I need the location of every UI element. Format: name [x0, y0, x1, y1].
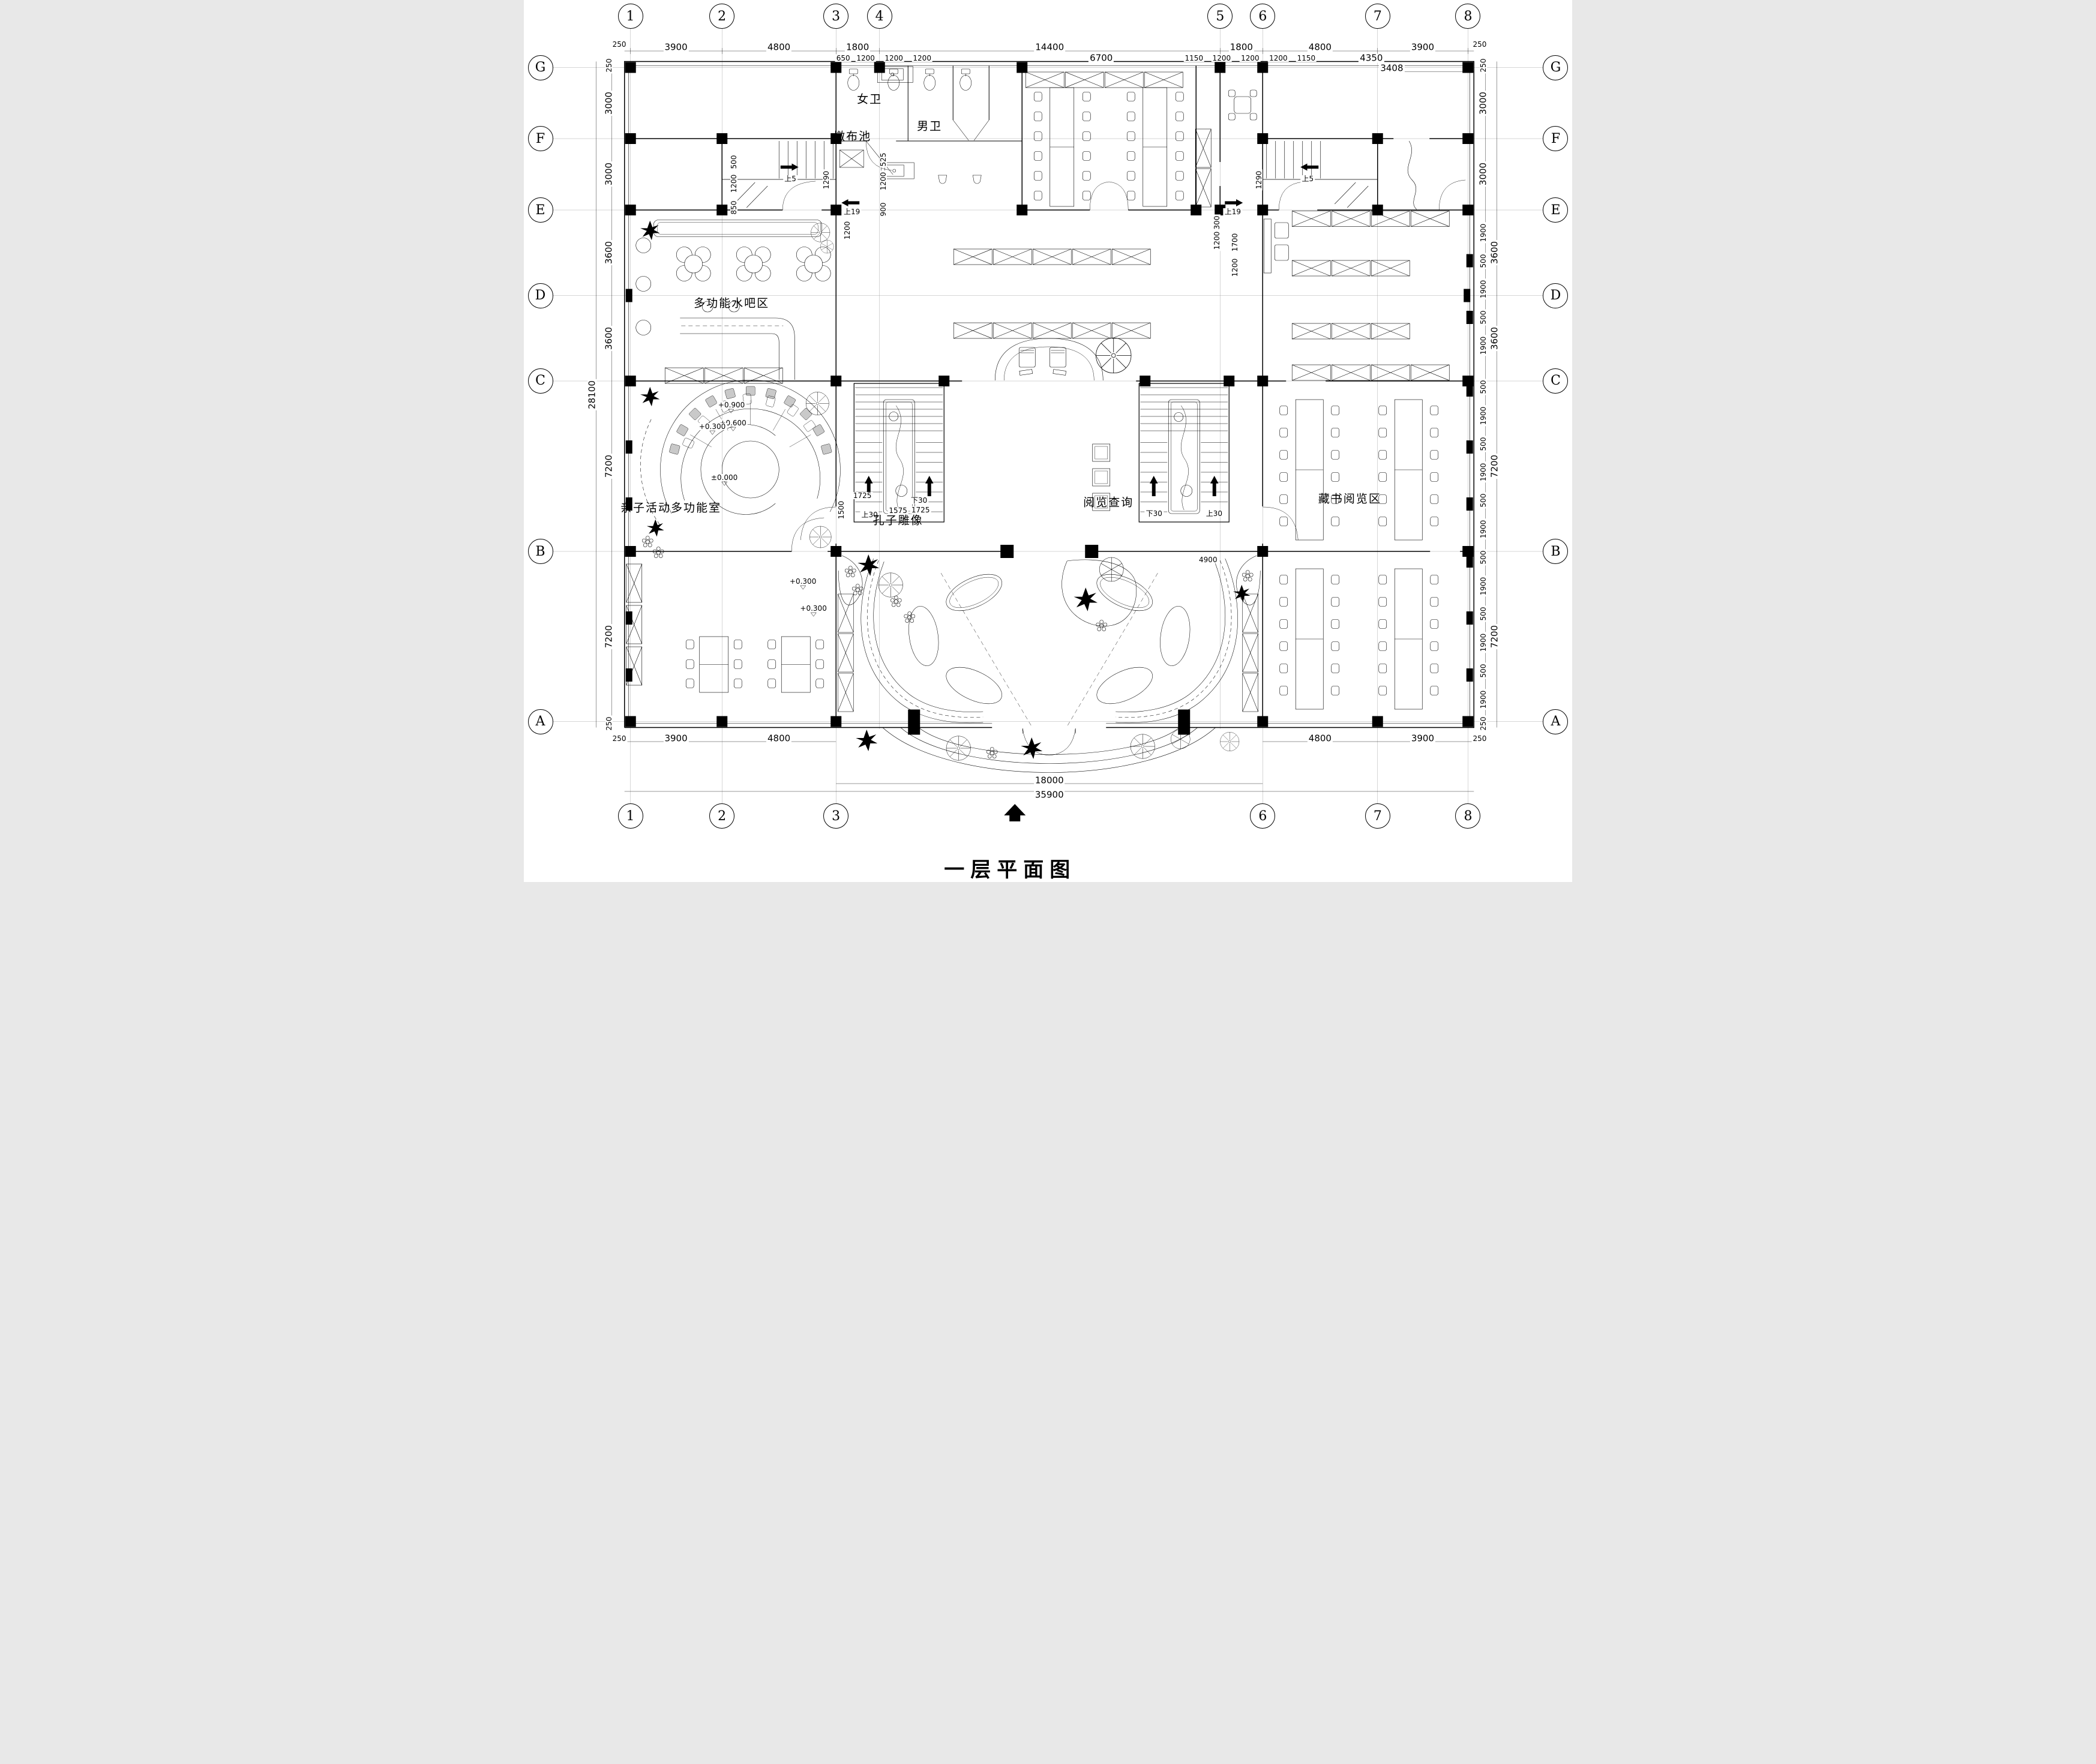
- dimension-text: 500: [1480, 253, 1487, 269]
- stair-note: 下30: [1145, 510, 1164, 517]
- drawing-title: 一层平面图: [943, 860, 1077, 880]
- stair-note: 上19: [1224, 208, 1242, 215]
- grid-bubble-2: 2: [709, 803, 734, 829]
- dimension-text: 1500: [838, 500, 845, 521]
- grid-bubble-8: 8: [1455, 4, 1480, 29]
- grid-bubble-A: A: [528, 709, 553, 734]
- grid-bubble-7: 7: [1365, 4, 1390, 29]
- dimension-text: 1900: [1480, 518, 1487, 539]
- dimension-text: 35900: [1034, 791, 1065, 800]
- dimension-text: 3600: [1491, 240, 1500, 265]
- dimension-text: 3900: [1410, 43, 1435, 52]
- level-mark: +0.300: [799, 605, 827, 612]
- dimension-text: 7200: [605, 454, 614, 479]
- dimension-text: 250: [605, 58, 613, 74]
- grid-bubble-C: C: [1543, 368, 1568, 394]
- stair-note: 上30: [1205, 510, 1224, 517]
- grid-bubble-6: 6: [1250, 803, 1275, 829]
- dimension-text: 500: [1480, 493, 1487, 509]
- dimension-text: 4800: [1308, 43, 1333, 52]
- dimension-text: 650: [835, 55, 851, 62]
- grid-bubble-1: 1: [618, 803, 643, 829]
- dimension-text: 18000: [1034, 776, 1065, 785]
- dimension-text: 300: [1213, 215, 1221, 231]
- dimension-text: 3600: [1491, 325, 1500, 350]
- dimension-text: 4800: [766, 734, 791, 743]
- dimension-text: 1200: [1240, 55, 1261, 62]
- room-label-female-wc: 女卫: [856, 94, 883, 106]
- stair-note: 上19: [842, 208, 861, 215]
- grid-bubble-6: 6: [1250, 4, 1275, 29]
- dimension-text: 3000: [605, 90, 614, 115]
- dimension-text: 1575: [887, 507, 908, 514]
- dimension-text: 3600: [605, 325, 614, 350]
- dimension-text: 500: [1480, 550, 1487, 566]
- dimension-text: 1200: [911, 55, 932, 62]
- dimension-text: 1800: [1229, 43, 1254, 52]
- room-label-reading-query: 阅览查询: [1082, 497, 1135, 509]
- dimension-text: 3000: [605, 161, 614, 187]
- dimension-text: 1200: [844, 220, 851, 241]
- room-label-water-bar: 多功能水吧区: [692, 298, 770, 310]
- dimension-text: 1200: [730, 173, 737, 194]
- dimension-text: 7200: [605, 623, 614, 649]
- grid-bubble-E: E: [1543, 197, 1568, 223]
- dimension-text: 4900: [1198, 556, 1219, 563]
- grid-bubble-8: 8: [1455, 803, 1480, 829]
- level-mark: +0.900: [717, 401, 746, 409]
- grid-bubble-C: C: [528, 368, 553, 394]
- room-label-book-reading-area: 藏书阅览区: [1317, 494, 1383, 505]
- dimension-text: 3000: [1479, 90, 1488, 115]
- dimension-text: 1700: [1231, 232, 1239, 253]
- dimension-text: 6700: [1089, 54, 1114, 63]
- stair-note: 上5: [1301, 175, 1315, 182]
- dimension-text: 1200: [1231, 257, 1239, 278]
- dimension-text: 1200: [880, 171, 887, 192]
- level-mark: +0.300: [698, 423, 727, 430]
- dimension-text: 3900: [663, 43, 688, 52]
- room-label-male-wc: 男卫: [916, 121, 943, 133]
- dimension-text: 1900: [1480, 462, 1487, 483]
- dimension-text: 3408: [1379, 64, 1404, 73]
- grid-bubble-3: 3: [823, 4, 848, 29]
- dimension-text: 1290: [1255, 170, 1263, 191]
- grid-bubble-B: B: [1543, 539, 1568, 564]
- dimension-text: 500: [1480, 663, 1487, 679]
- dimension-text: 1725: [910, 506, 931, 514]
- dimension-text: 900: [880, 202, 887, 218]
- annotations-layer: 2503900480018001440018004800390025065012…: [524, 0, 1572, 882]
- dimension-text: 14400: [1034, 43, 1065, 52]
- dimension-text: 4800: [766, 43, 791, 52]
- room-label-family-room: 亲子活动多功能室: [619, 503, 722, 514]
- dimension-text: 3000: [1479, 161, 1488, 187]
- grid-bubble-3: 3: [823, 803, 848, 829]
- grid-bubble-D: D: [528, 283, 553, 308]
- dimension-text: 1900: [1480, 222, 1487, 243]
- dimension-text: 250: [611, 735, 628, 742]
- room-label-confucius-statue: 孔子雕像: [872, 515, 925, 527]
- grid-bubble-G: G: [1543, 55, 1568, 80]
- dimension-text: 250: [611, 41, 628, 48]
- dimension-text: 250: [1480, 716, 1487, 732]
- dimension-text: 500: [1480, 436, 1487, 452]
- dimension-text: 1900: [1480, 632, 1487, 653]
- stair-note: 下30: [910, 497, 928, 504]
- grid-bubble-2: 2: [709, 4, 734, 29]
- dimension-text: 1800: [845, 43, 870, 52]
- dimension-text: 7200: [1491, 454, 1500, 479]
- level-mark: +0.300: [788, 578, 817, 585]
- grid-bubble-1: 1: [618, 4, 643, 29]
- floor-plan: 2503900480018001440018004800390025065012…: [524, 0, 1572, 882]
- dimension-text: 1200: [883, 55, 904, 62]
- dimension-text: 500: [1480, 606, 1487, 622]
- dimension-text: 1200: [1213, 230, 1221, 251]
- dimension-text: 850: [730, 200, 737, 216]
- dimension-text: 250: [1480, 58, 1487, 74]
- grid-bubble-F: F: [1543, 126, 1568, 151]
- dimension-text: 525: [880, 152, 887, 168]
- dimension-text: 1150: [1296, 55, 1317, 62]
- dimension-text: 250: [605, 716, 613, 732]
- grid-bubble-7: 7: [1365, 803, 1390, 829]
- dimension-text: 1900: [1480, 335, 1487, 356]
- dimension-text: 1200: [1212, 55, 1233, 62]
- grid-bubble-G: G: [528, 55, 553, 80]
- grid-bubble-A: A: [1543, 709, 1568, 734]
- room-label-mop-pool: 墩布池: [832, 131, 872, 142]
- dimension-text: 250: [1472, 735, 1488, 742]
- dimension-text: 1900: [1480, 405, 1487, 426]
- grid-bubble-5: 5: [1207, 4, 1233, 29]
- dimension-text: 1900: [1480, 575, 1487, 596]
- stair-note: 上5: [783, 175, 797, 182]
- grid-bubble-4: 4: [867, 4, 892, 29]
- dimension-text: 500: [1480, 310, 1487, 326]
- dimension-text: 1290: [823, 170, 830, 191]
- dimension-text: 1150: [1184, 55, 1205, 62]
- dimension-text: 3600: [605, 240, 614, 265]
- dimension-text: 500: [1480, 379, 1487, 395]
- dimension-text: 3900: [1410, 734, 1435, 743]
- grid-bubble-B: B: [528, 539, 553, 564]
- dimension-text: 4800: [1308, 734, 1333, 743]
- grid-bubble-E: E: [528, 197, 553, 223]
- dimension-text: 1900: [1480, 689, 1487, 710]
- dimension-text: 3900: [663, 734, 688, 743]
- dimension-text: 7200: [1491, 623, 1500, 649]
- dimension-text: 1900: [1480, 279, 1487, 300]
- grid-bubble-D: D: [1543, 283, 1568, 308]
- level-mark: ±0.000: [710, 474, 739, 481]
- dimension-text: 250: [1472, 41, 1488, 48]
- dimension-text: 28100: [588, 379, 597, 410]
- dimension-text: 4350: [1359, 54, 1384, 63]
- dimension-text: 1200: [855, 55, 876, 62]
- dimension-text: 1200: [1268, 55, 1289, 62]
- grid-bubble-F: F: [528, 126, 553, 151]
- dimension-text: 1725: [852, 492, 873, 499]
- dimension-text: 500: [730, 154, 737, 170]
